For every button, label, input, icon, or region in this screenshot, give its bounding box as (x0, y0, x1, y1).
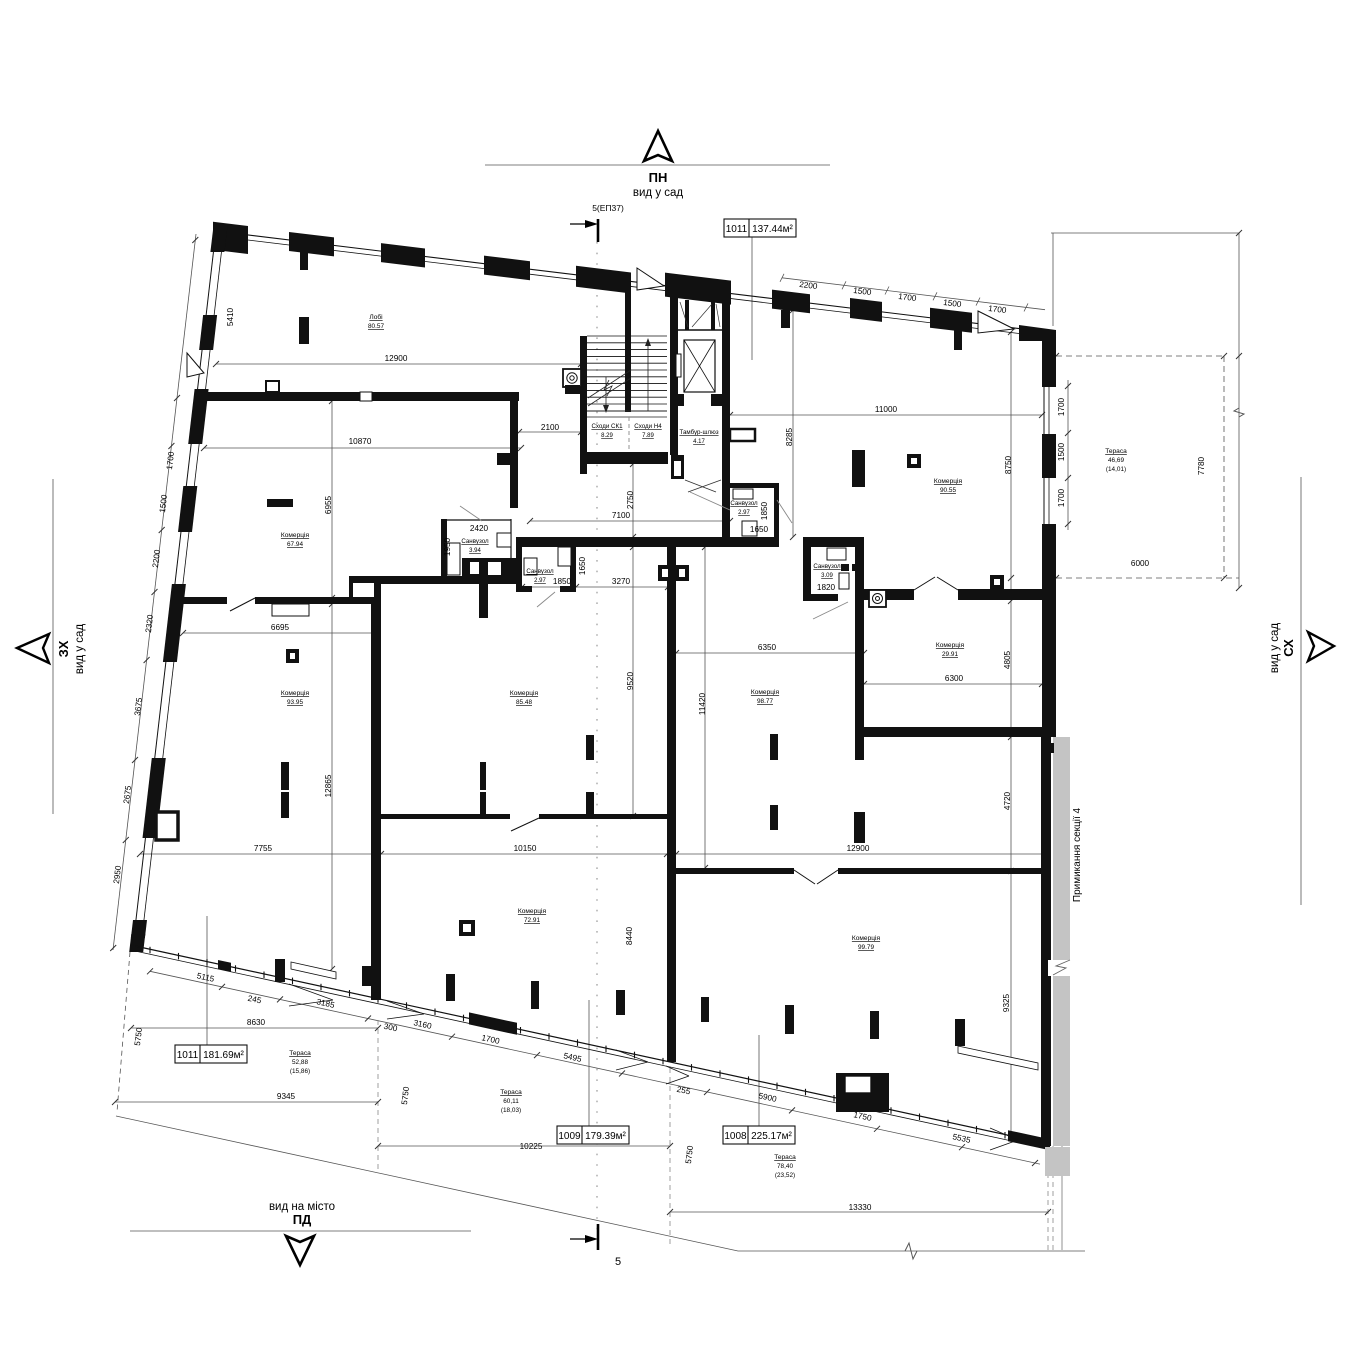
svg-text:29.91: 29.91 (942, 651, 958, 658)
svg-text:78,40: 78,40 (777, 1163, 793, 1170)
svg-text:7755: 7755 (254, 844, 273, 853)
svg-text:12900: 12900 (385, 354, 408, 363)
svg-text:1650: 1650 (578, 556, 587, 575)
svg-text:Санвузол: Санвузол (461, 538, 489, 545)
svg-text:Санвузол: Санвузол (813, 563, 841, 570)
svg-text:52,88: 52,88 (292, 1059, 308, 1066)
svg-text:Комерція: Комерція (518, 907, 547, 915)
svg-text:1850: 1850 (760, 501, 769, 520)
svg-text:Тераса: Тераса (289, 1050, 311, 1057)
svg-text:ПД: ПД (293, 1212, 312, 1227)
svg-text:СХ: СХ (1281, 639, 1296, 657)
svg-text:1011: 1011 (726, 224, 748, 235)
svg-text:1008: 1008 (724, 1131, 747, 1142)
svg-text:8.29: 8.29 (601, 433, 613, 439)
svg-text:1011: 1011 (177, 1050, 199, 1061)
svg-text:12865: 12865 (324, 774, 333, 797)
svg-text:1700: 1700 (1057, 397, 1066, 416)
svg-text:ЗХ: ЗХ (56, 640, 71, 657)
svg-text:8750: 8750 (1004, 455, 1013, 474)
svg-text:5410: 5410 (226, 307, 235, 326)
svg-text:11420: 11420 (698, 692, 707, 715)
svg-text:9520: 9520 (626, 671, 635, 690)
svg-text:11000: 11000 (875, 405, 898, 414)
svg-text:6350: 6350 (758, 643, 777, 652)
svg-text:1500: 1500 (1057, 442, 1066, 461)
svg-text:9345: 9345 (277, 1092, 296, 1101)
svg-text:72.91: 72.91 (524, 917, 540, 924)
svg-text:12900: 12900 (847, 844, 870, 853)
svg-text:179.39м²: 179.39м² (585, 1131, 626, 1142)
svg-text:181.69м²: 181.69м² (203, 1050, 244, 1061)
svg-text:46,69: 46,69 (1108, 457, 1124, 464)
svg-text:10870: 10870 (349, 437, 372, 446)
svg-text:Комерція: Комерція (510, 689, 539, 697)
svg-text:5: 5 (615, 1256, 621, 1268)
svg-text:6300: 6300 (945, 674, 964, 683)
svg-text:Тераса: Тераса (774, 1154, 796, 1161)
svg-text:4720: 4720 (1003, 791, 1012, 810)
svg-text:Комерція: Комерція (852, 934, 881, 942)
svg-text:2750: 2750 (626, 490, 635, 509)
svg-text:1009: 1009 (558, 1131, 581, 1142)
svg-text:Тамбур-шлюз: Тамбур-шлюз (679, 429, 718, 436)
svg-text:8630: 8630 (247, 1018, 266, 1027)
svg-text:3.09: 3.09 (821, 573, 833, 579)
svg-text:90.55: 90.55 (940, 487, 956, 494)
svg-text:9325: 9325 (1002, 993, 1011, 1012)
svg-text:8440: 8440 (625, 926, 634, 945)
svg-text:Тераса: Тераса (1105, 448, 1127, 455)
svg-text:3.94: 3.94 (469, 548, 481, 554)
svg-text:Лобі: Лобі (369, 313, 383, 321)
svg-text:вид у сад: вид у сад (1269, 623, 1281, 674)
svg-text:7100: 7100 (612, 511, 631, 520)
svg-text:6955: 6955 (324, 495, 333, 514)
svg-text:(15,86): (15,86) (290, 1068, 310, 1075)
svg-text:1650: 1650 (750, 525, 769, 534)
svg-text:7.89: 7.89 (642, 433, 654, 439)
svg-text:вид у сад: вид у сад (74, 624, 86, 675)
svg-text:6000: 6000 (1131, 559, 1150, 568)
svg-text:85.48: 85.48 (516, 699, 532, 706)
svg-text:(18,03): (18,03) (501, 1107, 521, 1114)
svg-text:1820: 1820 (817, 583, 836, 592)
svg-text:ПН: ПН (649, 170, 668, 185)
svg-text:13330: 13330 (849, 1203, 872, 1212)
svg-text:Санвузол: Санвузол (730, 500, 758, 507)
svg-text:1850: 1850 (553, 577, 572, 586)
svg-text:Комерція: Комерція (751, 688, 780, 696)
svg-text:вид у сад: вид у сад (633, 187, 684, 199)
svg-text:6695: 6695 (271, 623, 290, 632)
svg-text:2.97: 2.97 (534, 578, 546, 584)
svg-text:99.79: 99.79 (858, 944, 874, 951)
svg-text:137.44м²: 137.44м² (752, 224, 793, 235)
svg-text:(14,01): (14,01) (1106, 466, 1126, 473)
svg-text:Сходи СК1: Сходи СК1 (591, 423, 623, 430)
svg-text:10225: 10225 (520, 1142, 543, 1151)
svg-text:2420: 2420 (470, 524, 489, 533)
svg-text:4.17: 4.17 (693, 439, 705, 445)
svg-text:1700: 1700 (1057, 488, 1066, 507)
svg-text:Комерція: Комерція (934, 477, 963, 485)
svg-text:Примикання секції 4: Примикання секції 4 (1072, 807, 1083, 902)
svg-text:5(ЕП37): 5(ЕП37) (592, 203, 624, 213)
svg-text:225.17м²: 225.17м² (751, 1131, 792, 1142)
svg-text:4805: 4805 (1003, 650, 1012, 669)
svg-text:60,11: 60,11 (503, 1098, 519, 1105)
svg-text:Сходи Н4: Сходи Н4 (634, 423, 662, 430)
svg-text:7780: 7780 (1197, 456, 1206, 475)
svg-text:1950: 1950 (443, 537, 452, 556)
svg-text:Комерція: Комерція (936, 641, 965, 649)
svg-text:10150: 10150 (514, 844, 537, 853)
svg-text:3270: 3270 (612, 577, 631, 586)
svg-text:Тераса: Тераса (500, 1089, 522, 1096)
svg-text:80.57: 80.57 (368, 323, 384, 330)
svg-text:8285: 8285 (785, 427, 794, 446)
svg-text:Комерція: Комерція (281, 689, 310, 697)
svg-text:2.97: 2.97 (738, 510, 750, 516)
svg-text:(23,52): (23,52) (775, 1172, 795, 1179)
svg-text:Санвузол: Санвузол (526, 568, 554, 575)
svg-text:67.94: 67.94 (287, 541, 303, 548)
svg-text:Комерція: Комерція (281, 531, 310, 539)
svg-text:98.77: 98.77 (757, 698, 773, 705)
svg-text:2100: 2100 (541, 423, 560, 432)
svg-text:93.95: 93.95 (287, 699, 303, 706)
